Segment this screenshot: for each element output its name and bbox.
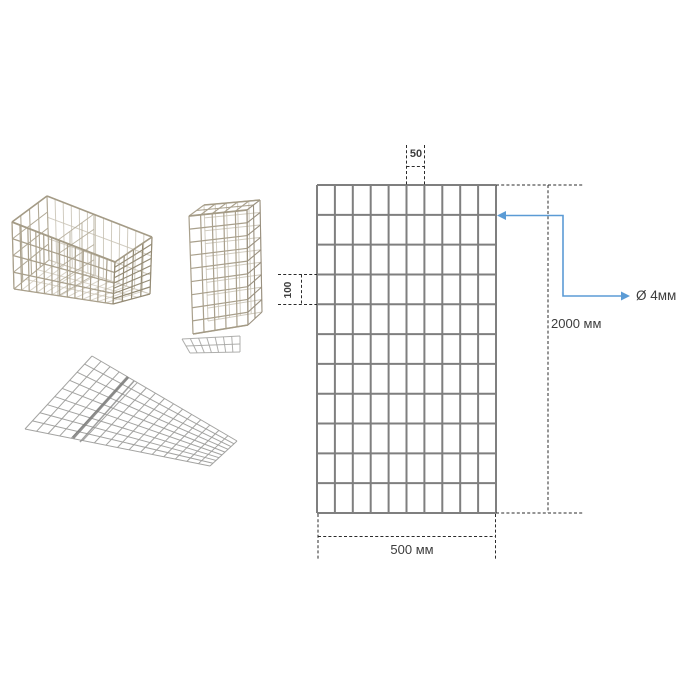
- dim-cell-width-label: 50: [403, 148, 429, 160]
- arrow-left-icon: [497, 211, 506, 220]
- gabion-mesh-product-image: 50 100 2000 мм 500 мм Ø 4мм: [0, 0, 700, 700]
- dimension-lines: [278, 145, 584, 559]
- callout-leader-line: [500, 216, 626, 297]
- gabion-basket-long-photo: [12, 196, 152, 304]
- gabion-basket-tall-photo: [189, 200, 262, 334]
- dim-cell-height-label: 100: [283, 275, 295, 305]
- dim-panel-width-label: 500 мм: [362, 543, 462, 557]
- wire-diameter-callout: [497, 211, 630, 301]
- arrow-right-icon: [621, 292, 630, 301]
- mesh-panel-grid: [317, 185, 496, 513]
- diagram-canvas: [0, 0, 700, 700]
- mesh-panels-flat-photo: [25, 336, 240, 466]
- dim-panel-height-label: 2000 мм: [551, 317, 601, 331]
- wire-diameter-label: Ø 4мм: [636, 289, 676, 303]
